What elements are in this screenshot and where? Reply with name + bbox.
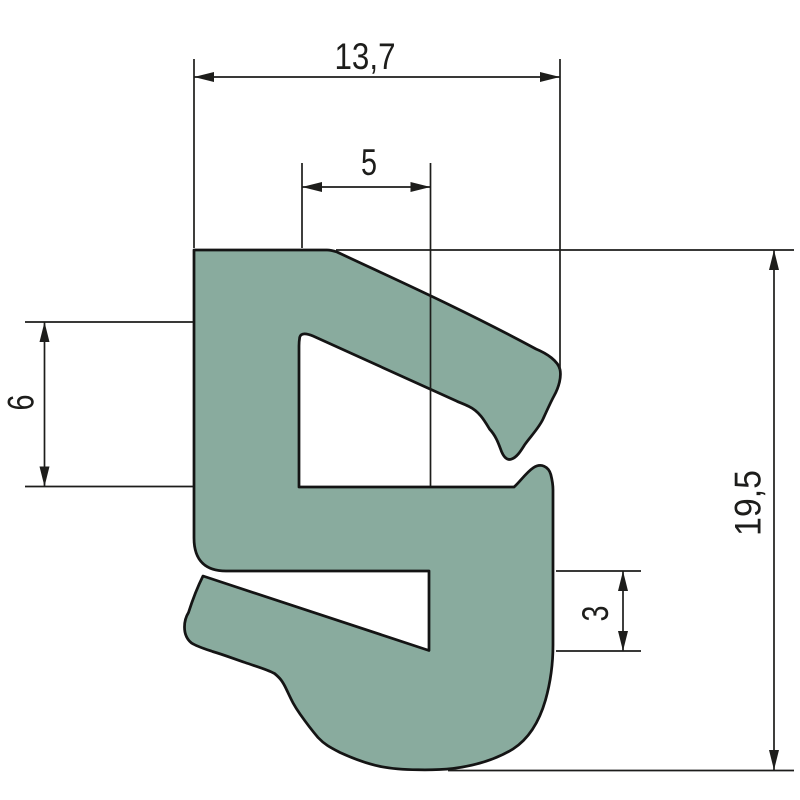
svg-text:5: 5 [361, 142, 377, 183]
svg-text:13,7: 13,7 [335, 36, 396, 77]
svg-text:19,5: 19,5 [728, 470, 769, 536]
svg-text:6: 6 [1, 395, 42, 411]
svg-text:3: 3 [575, 606, 616, 622]
